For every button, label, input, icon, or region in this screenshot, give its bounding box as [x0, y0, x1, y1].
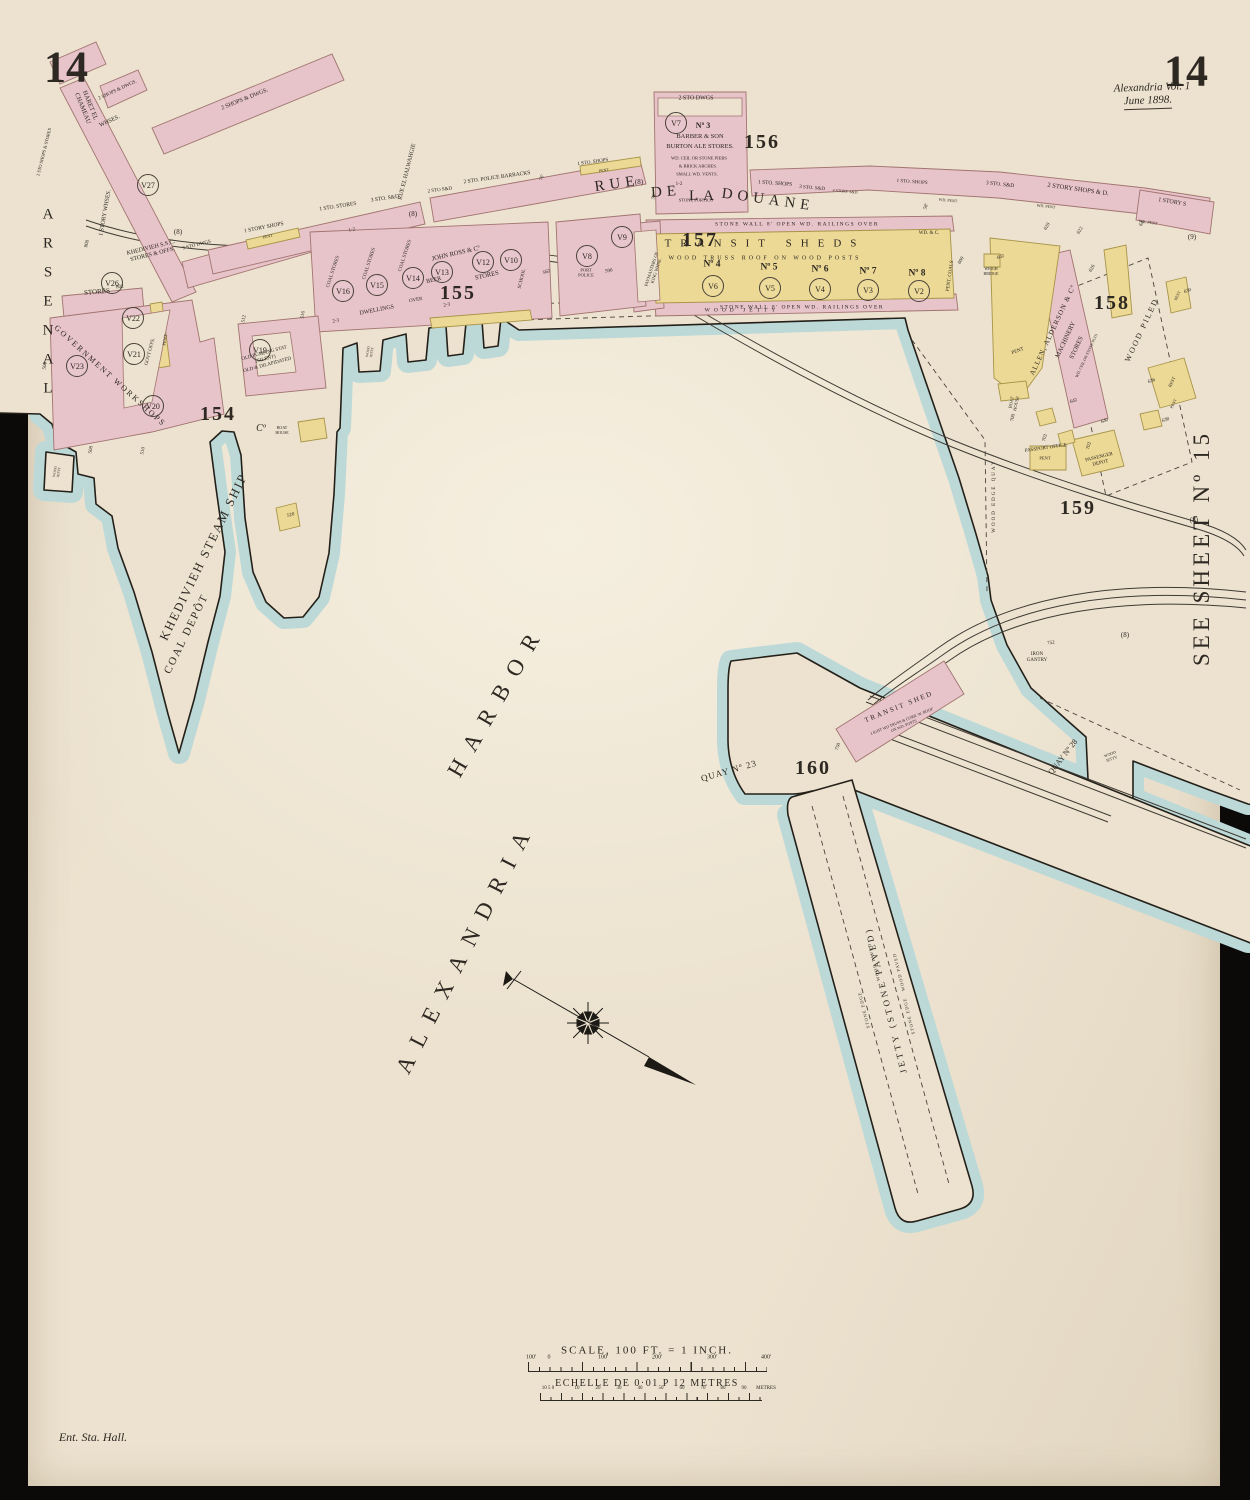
scale-tick-label: 80	[721, 1386, 726, 1392]
see-sheet-note: SEE SHEET Nº 15	[1188, 430, 1216, 666]
v-ref-4: V4	[809, 278, 831, 300]
width-ref: (8)	[1190, 516, 1198, 524]
width-ref: (9)	[1188, 233, 1196, 241]
dim-label: 508	[88, 446, 95, 454]
v-ref-21: V21	[123, 343, 145, 365]
bldg-label: BURTON ALE STORES.	[666, 143, 733, 151]
bldg-label: STONE PORTICO	[679, 197, 714, 202]
scale-echelle: ECHELLE DE 0·01 P 12 METRES	[555, 1378, 739, 1390]
bldg-label: SMALL WD. VENTS.	[676, 171, 717, 176]
bldg-label-transit-sheds: TRANSIT SHEDS	[665, 237, 866, 250]
v-ref-10: V10	[500, 249, 522, 271]
v-ref-12: V12	[472, 251, 494, 273]
v-ref-3: V3	[857, 279, 879, 301]
bldg-label-iron-gantry: IRON GANTRY	[1027, 652, 1048, 664]
width-ref: (8)	[409, 210, 417, 218]
v-ref-9: V9	[611, 226, 633, 248]
bldg-label-weigh-bridge: WEIGH BRIDGE	[984, 267, 999, 277]
bldg-label: 1-2	[348, 227, 356, 234]
block-number-160: 160	[795, 756, 831, 780]
bldg-label: WD. & C.	[919, 231, 940, 237]
width-ref: (8)	[635, 178, 643, 186]
scale-tick-label: 300'	[707, 1354, 717, 1361]
v-ref-2: V2	[908, 280, 930, 302]
bldg-label: 1-2	[676, 182, 683, 188]
block-number-154: 154	[200, 402, 236, 426]
dim-label: 512	[241, 315, 248, 323]
dim-label: 590	[605, 268, 613, 275]
map-sheet: 14 14 Alexandria Vol. 1 June 1898. Ent. …	[0, 0, 1250, 1500]
scale-ruler-metres	[540, 1393, 762, 1401]
scale-tick-label: 400'	[761, 1354, 771, 1361]
scale-tick-label: 10 5 0	[542, 1386, 555, 1392]
scale-tick-label: 100'	[598, 1354, 608, 1361]
bldg-label: BOAT HOUSE	[275, 426, 288, 436]
corner-note: Ent. Sta. Hall.	[59, 1430, 127, 1444]
bldg-label-wood-edge-quay: WOOD EDGE QUAY	[992, 459, 998, 532]
v-ref-27: V27	[137, 174, 159, 196]
v-ref-8: V8	[576, 245, 598, 267]
scale-tick-label: 50	[659, 1386, 664, 1392]
bldg-label: 2-3	[332, 318, 340, 325]
bldg-label: Cº	[256, 423, 266, 435]
bldg-label: BARBER & SON	[676, 133, 723, 141]
scale-tick-label: 100'	[526, 1354, 536, 1361]
scale-ruler-feet	[528, 1362, 767, 1372]
width-ref: (8)	[174, 228, 182, 236]
shed-number-7: Nº 7	[859, 266, 876, 277]
v-ref-5: V5	[759, 277, 781, 299]
dim-label: 802	[116, 285, 124, 292]
shed-number-4: Nº 4	[703, 259, 720, 270]
block-number-158: 158	[1094, 291, 1130, 315]
scale-tick-label: 200'	[652, 1354, 662, 1361]
street-arsenal: ARSENAL	[39, 207, 57, 410]
dim-label: 500	[42, 362, 49, 370]
scale-tick-label: 30	[617, 1386, 622, 1392]
v-ref-7: V7	[665, 112, 687, 134]
scale-tick-label: 70	[701, 1386, 706, 1392]
scale-tick-label: 10	[575, 1386, 580, 1392]
bldg-label-wood-jetty: WOOD JETTY	[705, 308, 780, 315]
scale-unit-label: METRES	[756, 1386, 776, 1392]
dim-label: 752	[1047, 641, 1055, 648]
bldg-label: Nº 3	[696, 121, 710, 131]
width-ref: (8)	[1121, 631, 1129, 639]
block-number-159: 159	[1060, 496, 1096, 520]
scale-tick-label: 40	[638, 1386, 643, 1392]
block-number-155: 155	[440, 281, 476, 305]
shed-number-6: Nº 6	[811, 264, 828, 275]
scale-tick-label: 20	[596, 1386, 601, 1392]
bldg-label: WD. CEIL OR STONE PIERS	[671, 155, 727, 160]
dim-label: 516	[300, 311, 307, 319]
scale-tick-label: 0	[548, 1354, 551, 1361]
bldg-label-port-police: PORT POLICE	[578, 268, 594, 279]
scale-tick-label: 60	[680, 1386, 685, 1392]
v-ref-6: V6	[702, 275, 724, 297]
v-ref-14: V14	[402, 267, 424, 289]
shed-number-8: Nº 8	[908, 268, 925, 279]
v-ref-16: V16	[332, 280, 354, 302]
date-note: June 1898.	[1124, 94, 1173, 111]
v-ref-15: V15	[366, 274, 388, 296]
sheet-number-left: 14	[44, 42, 88, 95]
v-ref-22: V22	[122, 307, 144, 329]
bldg-label: STONE WALL 8' OPEN WD. RAILINGS OVER	[715, 222, 879, 229]
scale-tick-label: 90	[742, 1386, 747, 1392]
bldg-label: 2 STO DWGS	[679, 95, 714, 102]
bldg-label: PENT	[1039, 455, 1050, 460]
bldg-label: 2-3	[443, 302, 451, 309]
shed-number-5: Nº 5	[760, 262, 777, 273]
bldg-label: & BRICK ARCHES.	[679, 163, 717, 168]
compass-icon	[503, 971, 696, 1085]
dim-label: 510	[140, 447, 147, 455]
block-number-156: 156	[744, 130, 780, 154]
